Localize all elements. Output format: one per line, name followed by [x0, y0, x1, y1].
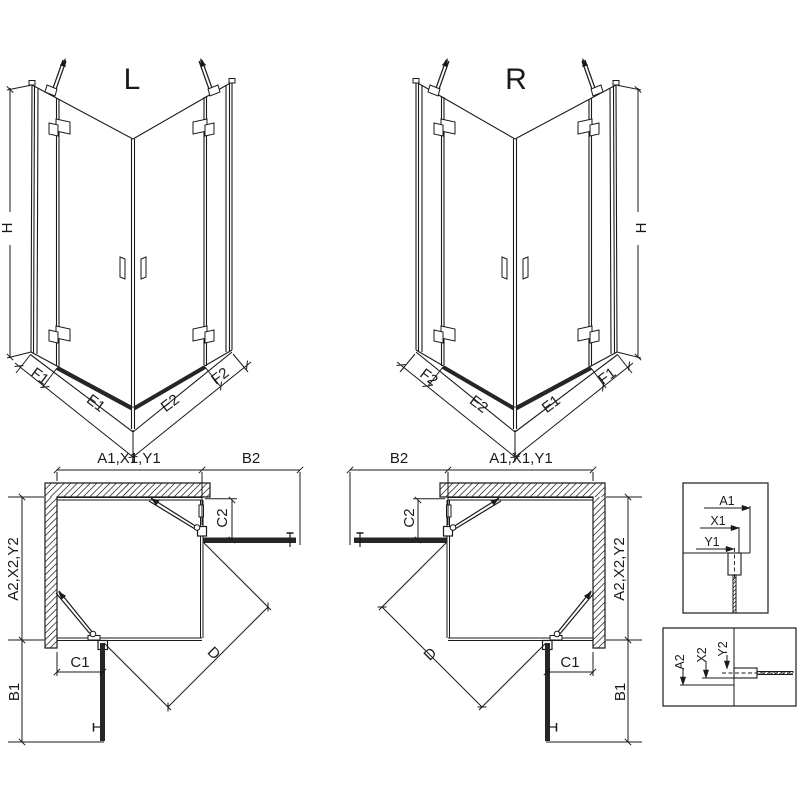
- plan-right-door-bottom-label: B1: [612, 683, 629, 701]
- shower-enclosure-technical-drawing: L H F1 E1 E2 F2 R H F2 E2 E1 F1 A1,X1,Y1…: [0, 0, 800, 800]
- plan-right-width-top-label: A1,X1,Y1: [489, 450, 552, 467]
- plan-left-fixed-bottom-label: C1: [70, 654, 89, 671]
- plan-left-width-top-label: A1,X1,Y1: [97, 450, 160, 467]
- plan-left-width-side-label: A2,X2,Y2: [5, 537, 22, 600]
- figure-right-title: R: [505, 63, 527, 96]
- plan-right-fixed-bottom-label: C1: [560, 654, 579, 671]
- plan-right-fixed-top-label: C2: [401, 508, 418, 527]
- detail-bottom-x2-label: X2: [695, 647, 709, 662]
- detail-bottom-y2-label: Y2: [716, 641, 730, 656]
- plan-left-fixed-top-label: C2: [214, 508, 231, 527]
- detail-top-x1-label: X1: [710, 514, 725, 528]
- plan-left-door-top-label: B2: [242, 450, 260, 467]
- plan-right-door-top-label: B2: [390, 450, 408, 467]
- detail-top-a1-label: A1: [719, 494, 734, 508]
- plan-left-door-bottom-label: B1: [6, 683, 23, 701]
- figure-left-title: L: [124, 63, 141, 96]
- technical-drawing-page: L H F1 E1 E2 F2 R H F2 E2 E1 F1 A1,X1,Y1…: [0, 0, 800, 800]
- figure-right-height-label: H: [633, 223, 650, 234]
- figure-left-height-label: H: [0, 223, 16, 234]
- plan-right-width-side-label: A2,X2,Y2: [611, 537, 628, 600]
- detail-bottom-a2-label: A2: [673, 654, 687, 669]
- detail-top-y1-label: Y1: [704, 535, 719, 549]
